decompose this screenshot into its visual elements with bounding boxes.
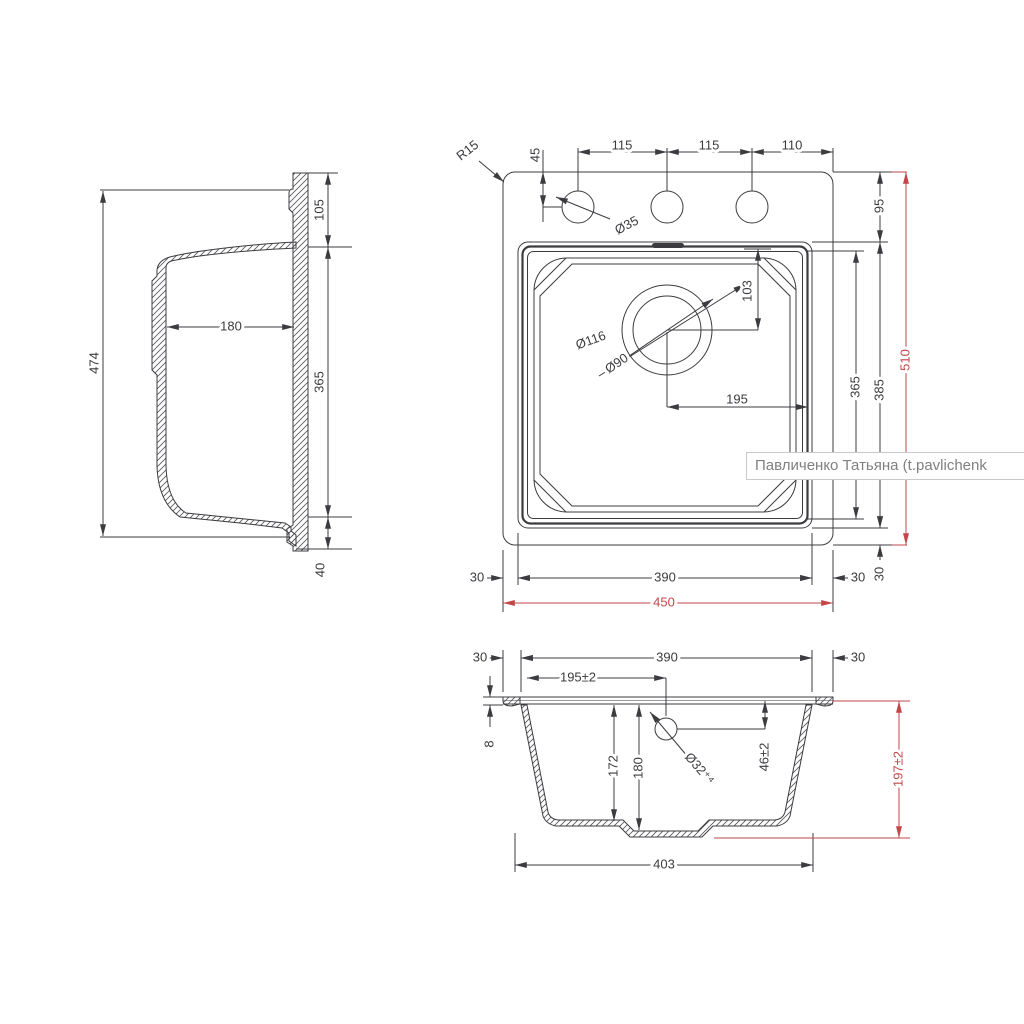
dim-drain-offset-right: 195	[726, 391, 748, 406]
side-view: 474 105 365 40 180	[86, 173, 352, 577]
dim-overall-length: 510	[897, 349, 912, 371]
dim-section-drain-offset: 195±2	[560, 669, 596, 684]
side-bowl-shell	[152, 242, 296, 546]
overflow-mark	[652, 243, 684, 248]
dim-drain-offset-top: 103	[739, 280, 754, 302]
dim-drain-depth: 46±2	[756, 743, 771, 772]
dim-hole-spacing-1: 115	[612, 137, 633, 152]
dim-side-overall-height: 474	[86, 352, 101, 374]
dim-depth-sump: 180	[630, 757, 645, 779]
dim-margin-right: 30	[851, 569, 865, 584]
rim-lip-left	[503, 697, 520, 706]
dim-overall-depth: 197±2	[890, 751, 905, 787]
watermark-text: Павличенко Татьяна (t.pavlichenk	[755, 457, 987, 474]
side-back-wall	[287, 173, 308, 551]
dim-section-margin-right: 30	[851, 649, 865, 664]
dim-section-bowl-width: 390	[656, 649, 678, 664]
sink-drawing: 474 105 365 40 180 Ø116 Ø90	[0, 0, 1024, 1024]
rim-lip-right	[816, 697, 833, 706]
dim-side-bottom-flange: 40	[312, 563, 327, 577]
dim-cutout-length: 385	[871, 379, 886, 401]
dim-hole-diameter: Ø35	[612, 213, 641, 238]
dim-corner-radius: R15	[453, 137, 481, 164]
faucet-hole-2	[651, 191, 683, 223]
top-view: Ø116 Ø90 115 115 110 45 R15 Ø35 103 195 …	[453, 137, 912, 612]
dim-top-margin: 95	[871, 199, 886, 213]
bowl-rim-edge	[523, 247, 808, 524]
dim-drain-outer: Ø116	[574, 328, 608, 353]
section-view: Ø32⁺⁴ 30 390 30 195±2 8 172 180 46±2 403	[473, 649, 910, 872]
dim-side-bowl-width: 180	[220, 318, 242, 333]
dim-drain-diameter-section: Ø32⁺⁴	[682, 749, 718, 787]
dim-hole-spacing-3: 110	[782, 137, 803, 152]
dim-bottom-margin: 30	[871, 567, 886, 581]
dim-side-bowl-length: 365	[311, 371, 326, 393]
dim-bowl-inner-length: 365	[847, 376, 862, 398]
dim-drain-inner: Ø90	[602, 350, 631, 376]
dim-margin-left: 30	[470, 569, 484, 584]
sink-outline	[503, 172, 833, 545]
dim-bowl-width-top: 390	[654, 569, 676, 584]
dim-hole-spacing-2: 115	[699, 137, 720, 152]
dim-base-width: 403	[653, 856, 675, 871]
dim-rim-thickness: 8	[481, 740, 496, 747]
technical-drawing-page: 474 105 365 40 180 Ø116 Ø90	[0, 0, 1024, 1024]
watermark-tooltip: Павличенко Татьяна (t.pavlichenk	[746, 452, 1024, 480]
dim-side-ledge-height: 105	[311, 199, 326, 221]
dim-depth-inner: 172	[605, 755, 620, 777]
faucet-hole-3	[736, 191, 768, 223]
dim-section-margin-left: 30	[473, 649, 487, 664]
dim-hole-offset: 45	[527, 148, 542, 162]
faucet-hole-1	[562, 191, 594, 223]
dim-overall-width: 450	[653, 594, 675, 609]
